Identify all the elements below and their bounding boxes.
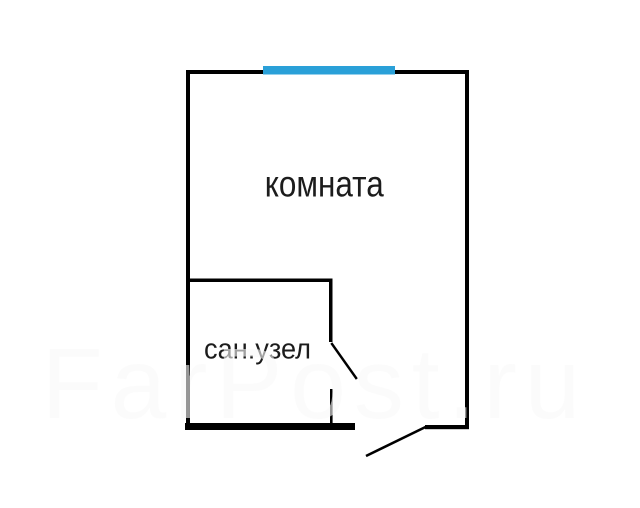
svg-text:FarPost.ru: FarPost.ru: [42, 328, 589, 440]
svg-text:комната: комната: [265, 164, 385, 205]
